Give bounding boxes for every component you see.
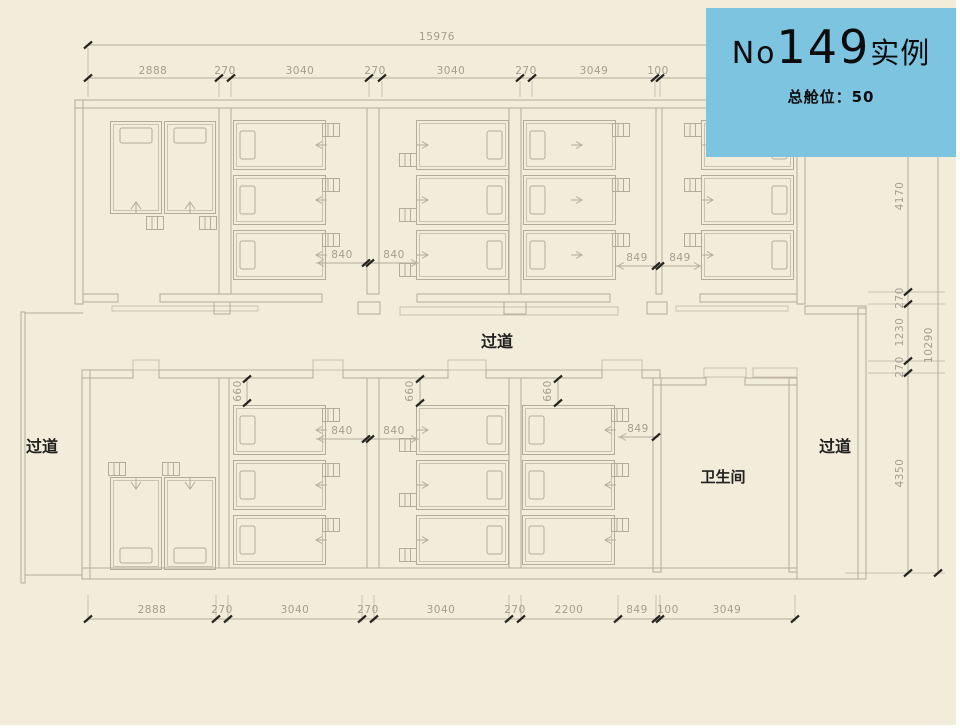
bed (111, 122, 162, 214)
bed (702, 176, 794, 225)
dim-label: 3049 (713, 604, 742, 616)
arrow-icon (417, 252, 428, 259)
arrow-icon (571, 142, 582, 149)
bed (523, 406, 615, 455)
arrow-icon (571, 197, 582, 204)
page-title: No149实例 (706, 24, 956, 72)
page-edge-right (956, 0, 960, 728)
bed (234, 406, 326, 455)
dim-label: 849 (626, 604, 648, 616)
dim-label: 270 (894, 356, 906, 378)
ladder-icon (400, 549, 417, 562)
dim-label: 270 (364, 65, 386, 77)
door-swing-icon (185, 478, 195, 489)
dim-label: 1230 (894, 318, 906, 347)
arrow-icon (702, 197, 713, 204)
floor-plan-page: 15976 2888 270 3040 270 3040 270 3049 10… (0, 0, 960, 728)
arrow-icon (417, 427, 428, 434)
bed (417, 121, 509, 170)
bed (523, 516, 615, 565)
dim-label: 100 (647, 65, 669, 77)
bed (234, 121, 326, 170)
arrow-icon (702, 252, 713, 259)
dim-label: 270 (515, 65, 537, 77)
dim-label: 270 (357, 604, 379, 616)
bed (234, 516, 326, 565)
door-swing-icon (131, 202, 141, 213)
door-swing-icon (131, 478, 141, 489)
dim-label: 270 (894, 287, 906, 309)
dim-label: 840 (383, 249, 405, 261)
dim-label: 2200 (555, 604, 584, 616)
corridor-center-label: 过道 (481, 332, 513, 351)
corridor-right-label: 过道 (819, 437, 851, 456)
dim-label: 849 (626, 252, 648, 264)
arrow-icon (571, 252, 582, 259)
ladder-icon (200, 217, 217, 230)
bed (524, 176, 616, 225)
dim-label: 100 (657, 604, 679, 616)
ladder-icon (147, 217, 164, 230)
bed (417, 231, 509, 280)
arrow-icon (417, 482, 428, 489)
bed (523, 461, 615, 510)
bed (524, 121, 616, 170)
dim-label: 660 (232, 380, 244, 402)
ladder-icon (163, 463, 180, 476)
corridor-walls (21, 306, 866, 583)
ladder-icon (400, 494, 417, 507)
lower-block-walls (82, 360, 797, 579)
dim-label: 840 (331, 425, 353, 437)
dim-label: 660 (542, 380, 554, 402)
arrow-icon (417, 537, 428, 544)
ladder-icon (400, 264, 417, 277)
dim-label: 2888 (139, 65, 168, 77)
bed (524, 231, 616, 280)
dim-label: 3040 (281, 604, 310, 616)
bed (234, 176, 326, 225)
bed (417, 406, 509, 455)
ladder-icon (109, 463, 126, 476)
bed (111, 478, 162, 570)
interior-dimensions: 840 840 849 849 840 840 849 660 660 660 (232, 249, 702, 443)
right-dimensions: 4170 270 1230 270 4350 10290 (845, 100, 945, 577)
bottom-dimensions: 2888 270 3040 270 3040 270 2200 849 100 … (84, 595, 799, 623)
ladder-icon (685, 234, 702, 247)
bed (234, 461, 326, 510)
dim-label: 3040 (437, 65, 466, 77)
dim-overall-width: 15976 (419, 31, 455, 43)
dim-label: 270 (211, 604, 233, 616)
dim-label: 270 (504, 604, 526, 616)
title-suffix: 实例 (870, 30, 930, 72)
capacity-label: 总舱位：50 (706, 86, 956, 107)
upper-block-beds (111, 121, 794, 280)
dim-label: 4350 (894, 459, 906, 488)
door-swing-icon (185, 202, 195, 213)
dim-label: 849 (627, 423, 649, 435)
bed (165, 478, 216, 570)
dim-label: 3049 (580, 65, 609, 77)
dim-overall-height: 10290 (923, 327, 935, 363)
corridor-left-label: 过道 (26, 437, 58, 456)
lower-block-beds (109, 406, 629, 570)
title-card: No149实例 总舱位：50 (706, 8, 956, 157)
bed (417, 176, 509, 225)
arrow-icon (417, 142, 428, 149)
dim-label: 270 (214, 65, 236, 77)
dim-label: 849 (669, 252, 691, 264)
title-number: 149 (776, 24, 870, 70)
dim-label: 840 (331, 249, 353, 261)
bed (165, 122, 216, 214)
bed (417, 461, 509, 510)
dim-label: 3040 (427, 604, 456, 616)
title-prefix: No (732, 36, 777, 71)
bed (234, 231, 326, 280)
bathroom-label: 卫生间 (700, 468, 745, 486)
dim-label: 4170 (894, 182, 906, 211)
dim-label: 660 (404, 380, 416, 402)
dim-label: 3040 (286, 65, 315, 77)
bed (417, 516, 509, 565)
arrow-icon (417, 197, 428, 204)
dim-label: 840 (383, 425, 405, 437)
ladder-icon (685, 179, 702, 192)
top-dimensions: 15976 2888 270 3040 270 3040 270 3049 10… (84, 31, 795, 97)
ladder-icon (400, 154, 417, 167)
bed (702, 231, 794, 280)
dim-label: 2888 (138, 604, 167, 616)
ladder-icon (685, 124, 702, 137)
ladder-icon (400, 209, 417, 222)
